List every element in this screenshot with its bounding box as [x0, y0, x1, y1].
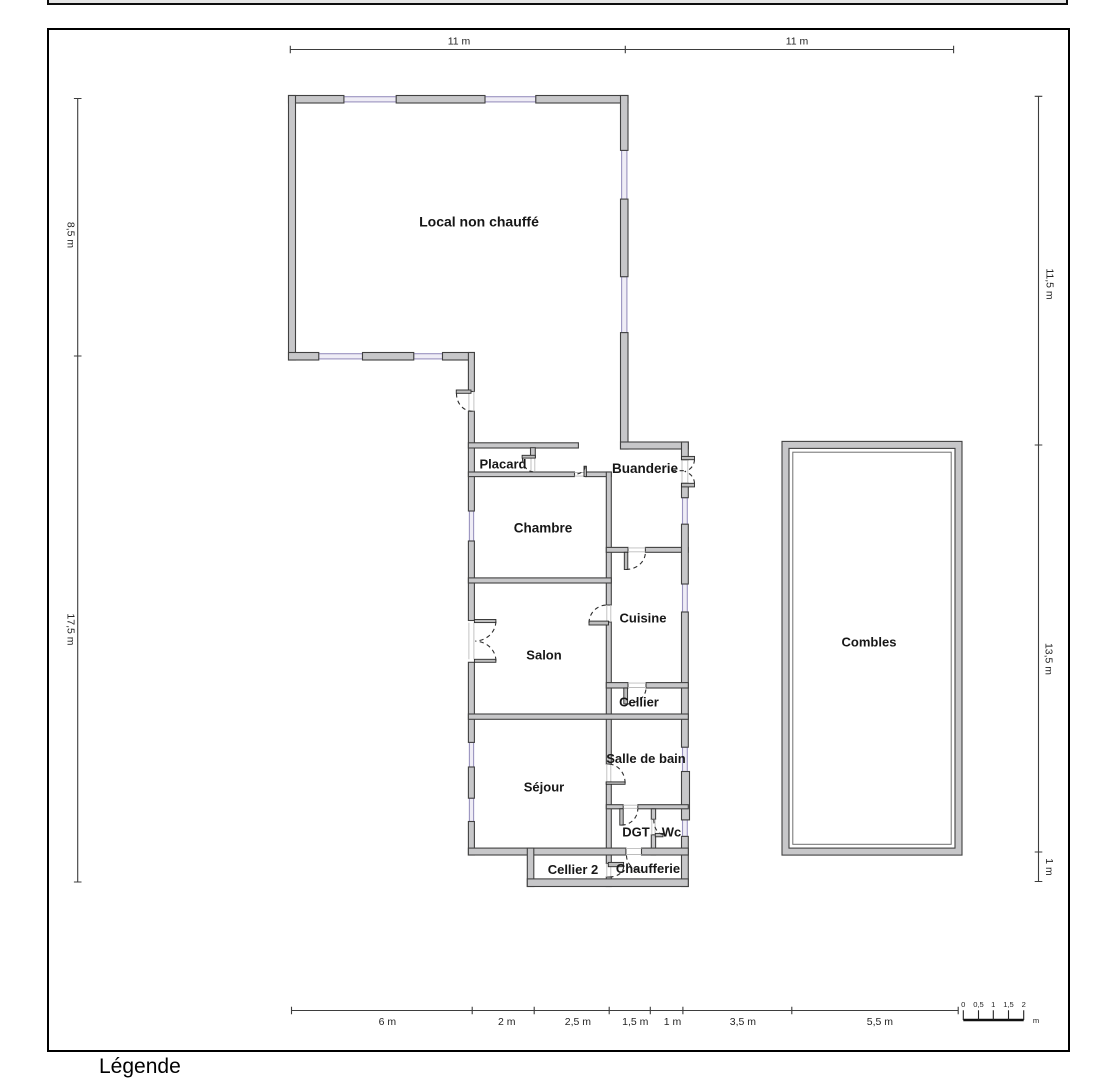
svg-text:1,5: 1,5	[1003, 1000, 1014, 1009]
svg-text:Wc: Wc	[662, 825, 682, 840]
svg-text:Cellier: Cellier	[619, 695, 659, 710]
svg-text:2 m: 2 m	[498, 1016, 516, 1028]
svg-text:Chaufferie: Chaufferie	[616, 861, 680, 876]
svg-text:Cuisine: Cuisine	[620, 611, 667, 626]
svg-text:13,5 m: 13,5 m	[1043, 643, 1055, 675]
svg-text:1 m: 1 m	[664, 1016, 682, 1028]
svg-text:0,5: 0,5	[973, 1000, 984, 1009]
svg-text:1 m: 1 m	[1043, 858, 1055, 876]
svg-text:Combles: Combles	[842, 635, 897, 650]
svg-text:Séjour: Séjour	[524, 780, 564, 795]
svg-text:Local non chauffé: Local non chauffé	[419, 214, 539, 230]
svg-text:2: 2	[1022, 1000, 1026, 1009]
svg-text:6 m: 6 m	[379, 1016, 397, 1028]
svg-text:11 m: 11 m	[448, 36, 471, 48]
svg-text:Cellier 2: Cellier 2	[548, 862, 599, 877]
svg-text:Placard: Placard	[480, 457, 527, 472]
svg-text:m: m	[1033, 1016, 1039, 1025]
svg-text:1,5 m: 1,5 m	[622, 1016, 649, 1028]
svg-text:8,5 m: 8,5 m	[64, 222, 76, 249]
svg-text:11,5 m: 11,5 m	[1044, 268, 1056, 300]
svg-text:5,5 m: 5,5 m	[867, 1016, 894, 1028]
svg-text:Buanderie: Buanderie	[612, 461, 679, 476]
svg-text:2,5 m: 2,5 m	[565, 1016, 592, 1028]
svg-text:1: 1	[991, 1000, 995, 1009]
svg-text:3,5 m: 3,5 m	[730, 1016, 757, 1028]
svg-text:Salon: Salon	[526, 648, 561, 663]
svg-text:Chambre: Chambre	[514, 520, 573, 535]
svg-text:Salle de bain: Salle de bain	[606, 751, 686, 766]
svg-text:DGT: DGT	[622, 825, 650, 840]
svg-text:0: 0	[961, 1000, 965, 1009]
svg-text:11 m: 11 m	[786, 36, 809, 48]
svg-text:17,5 m: 17,5 m	[65, 613, 77, 645]
